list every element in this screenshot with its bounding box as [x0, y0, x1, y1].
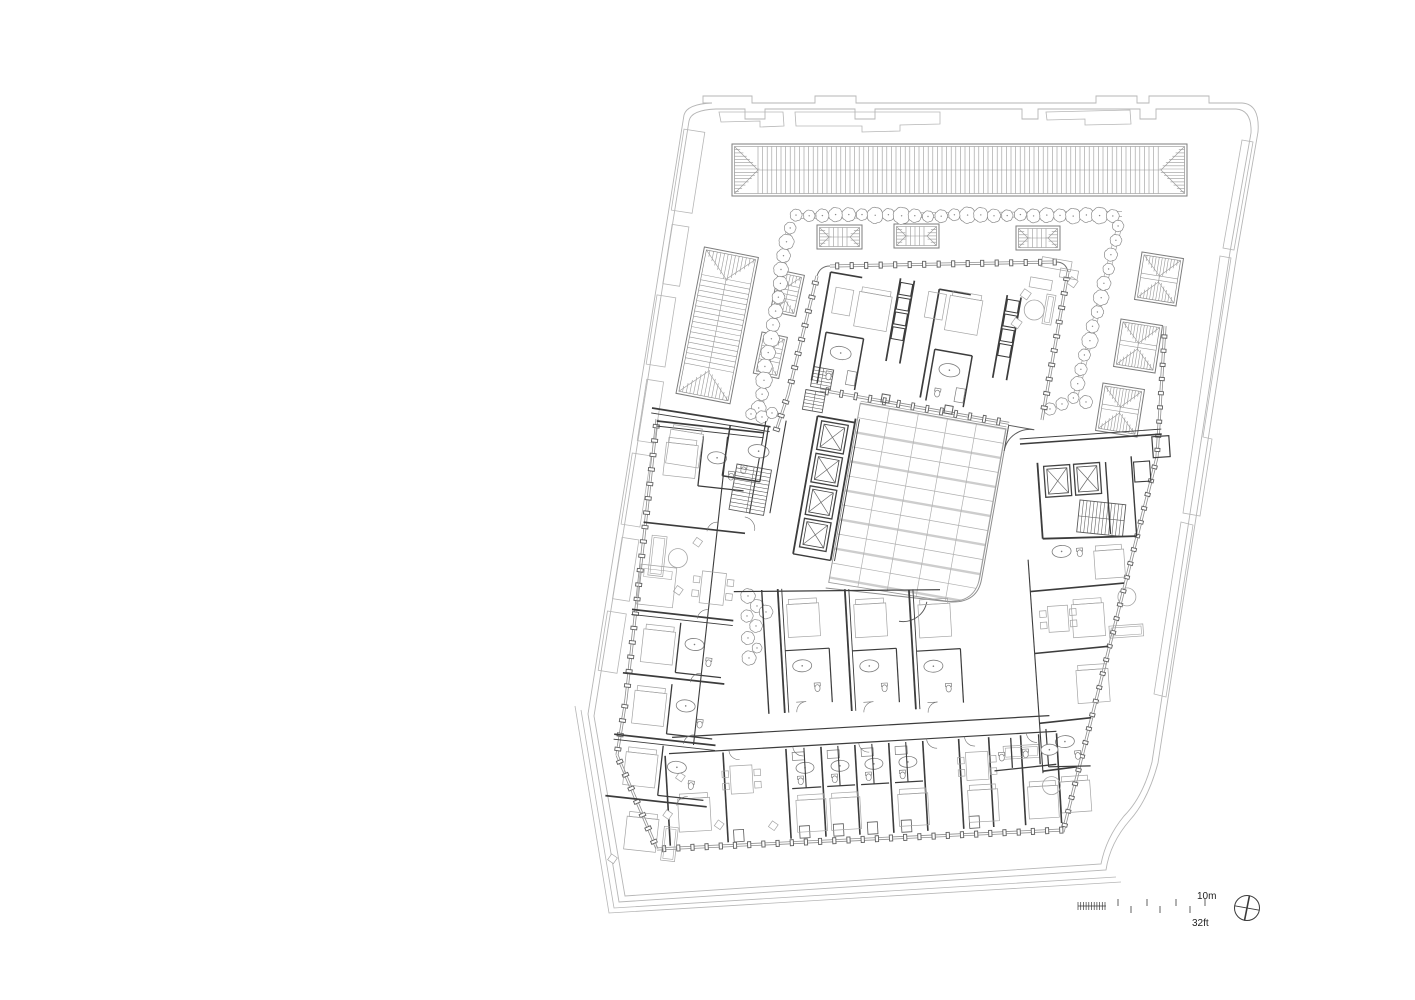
svg-text:32ft: 32ft: [1192, 918, 1209, 929]
svg-text:10m: 10m: [1197, 891, 1216, 902]
